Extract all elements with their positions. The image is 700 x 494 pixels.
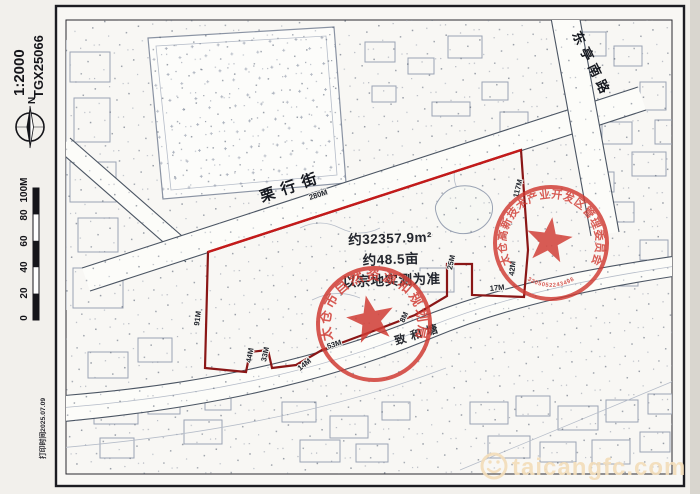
sheet-number: TGX25066 [31, 35, 46, 98]
cadastral-map-sheet: 1:2000 TGX25066 N 100M 80 60 40 20 0 打印时… [0, 0, 700, 494]
parcel-area-sqm: 约32357.9m² [348, 229, 432, 248]
scale-tick: 100M [19, 177, 30, 202]
watermark: taicangfc.com [482, 454, 686, 481]
parcel-area-mu: 约48.5亩 [362, 250, 419, 268]
map-scale-label: 1:2000 [11, 49, 28, 96]
scale-tick: 80 [19, 209, 30, 221]
scale-tick: 0 [19, 315, 30, 321]
map-canvas: 1:2000 TGX25066 N 100M 80 60 40 20 0 打印时… [0, 0, 700, 494]
print-timestamp: 打印时间2025.07.09 [38, 398, 47, 459]
watermark-site-text: taicangfc.com [512, 454, 686, 481]
north-label: N [27, 97, 38, 104]
scan-paper-edge [690, 0, 700, 494]
scale-tick: 20 [19, 287, 30, 299]
dimension-label: 17M [489, 282, 505, 292]
scale-tick: 40 [19, 261, 30, 273]
map-content: 栗行街 东亭南路 致和塘 约32357.9m² 约48.5亩 以宗地实测为准 2… [58, 14, 676, 474]
scale-tick: 60 [19, 235, 30, 247]
